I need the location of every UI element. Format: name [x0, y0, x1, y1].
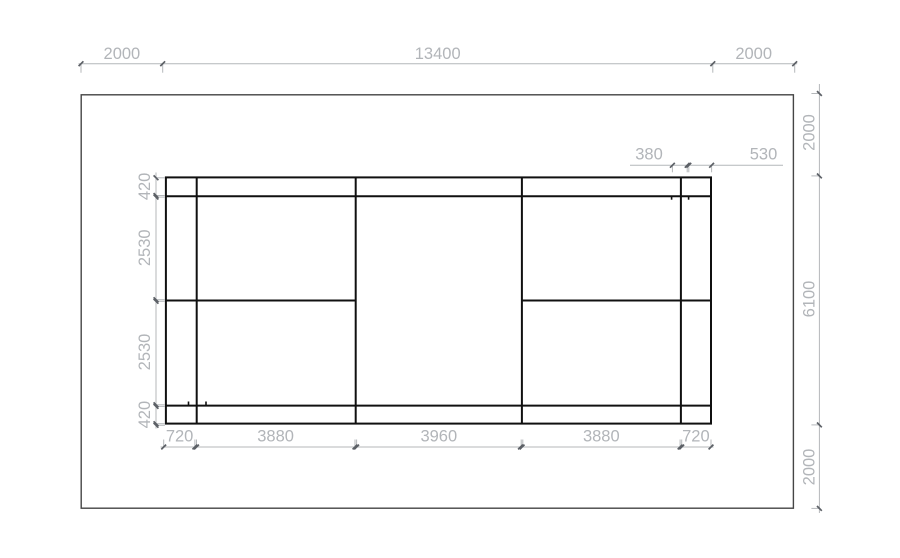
svg-text:3880: 3880 — [583, 428, 620, 446]
svg-text:3960: 3960 — [420, 428, 457, 446]
svg-text:2000: 2000 — [801, 114, 819, 151]
svg-text:2000: 2000 — [104, 45, 141, 63]
svg-text:2000: 2000 — [801, 449, 819, 486]
svg-text:2000: 2000 — [735, 45, 772, 63]
svg-text:380: 380 — [635, 145, 663, 163]
svg-text:3880: 3880 — [257, 428, 294, 446]
svg-text:530: 530 — [750, 145, 778, 163]
svg-text:2530: 2530 — [136, 229, 154, 266]
svg-text:2530: 2530 — [136, 334, 154, 371]
svg-text:13400: 13400 — [415, 45, 461, 63]
svg-text:420: 420 — [136, 173, 154, 201]
svg-text:720: 720 — [682, 428, 710, 446]
svg-text:420: 420 — [136, 401, 154, 429]
svg-text:720: 720 — [166, 428, 194, 446]
svg-text:6100: 6100 — [801, 281, 819, 318]
